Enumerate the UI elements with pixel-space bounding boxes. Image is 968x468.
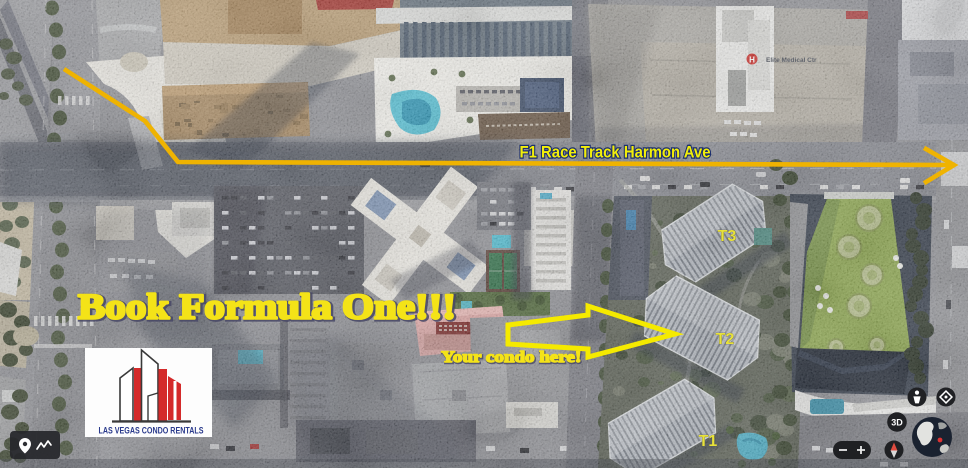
svg-text:Your condo here!: Your condo here! — [441, 349, 581, 366]
svg-text:Book Formula One!!!: Book Formula One!!! — [78, 287, 456, 327]
svg-text:T3: T3 — [718, 228, 737, 245]
svg-text:T2: T2 — [716, 331, 735, 348]
svg-text:T1: T1 — [699, 433, 718, 450]
svg-text:F1 Race Track Harmon Ave: F1 Race Track Harmon Ave — [520, 144, 711, 162]
svg-text:LAS VEGAS CONDO RENTALS: LAS VEGAS CONDO RENTALS — [99, 426, 204, 436]
svg-text:3D: 3D — [891, 418, 903, 428]
